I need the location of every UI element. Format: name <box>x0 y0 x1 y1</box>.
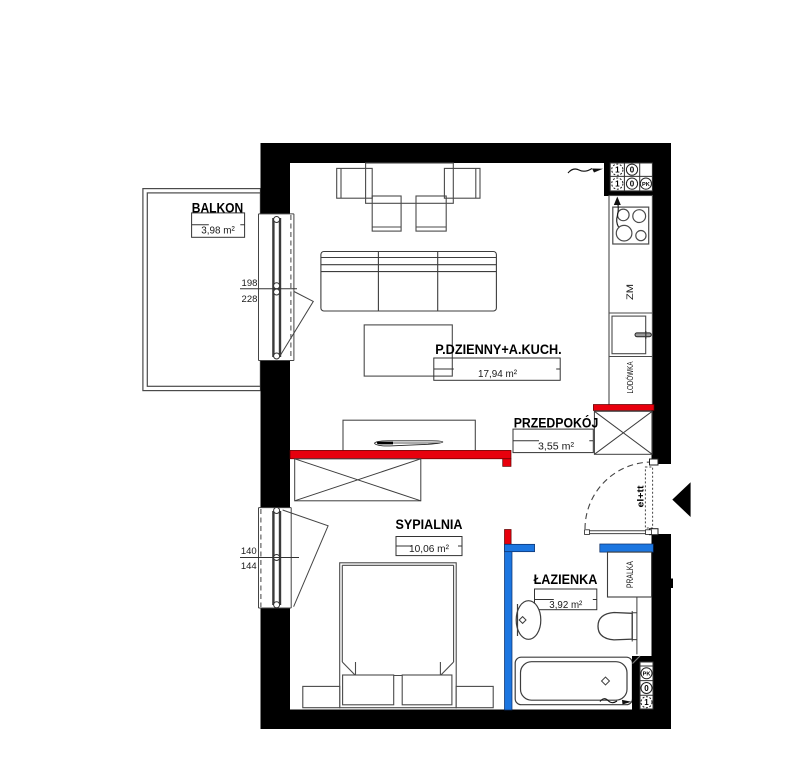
svg-text:228: 228 <box>242 294 258 305</box>
svg-text:ZM: ZM <box>625 284 636 300</box>
svg-text:198: 198 <box>242 278 258 289</box>
svg-text:1: 1 <box>615 180 620 189</box>
svg-text:17,94 m²: 17,94 m² <box>478 369 518 380</box>
svg-text:0: 0 <box>630 166 635 175</box>
svg-text:144: 144 <box>241 561 257 572</box>
svg-text:140: 140 <box>241 546 257 557</box>
svg-text:1: 1 <box>615 166 620 175</box>
svg-text:ŁAZIENKA: ŁAZIENKA <box>534 572 598 587</box>
svg-text:el+tt: el+tt <box>635 486 645 508</box>
svg-text:3,92 m²: 3,92 m² <box>549 600 583 611</box>
svg-text:SYPIALNIA: SYPIALNIA <box>396 517 463 532</box>
svg-text:PRALKA: PRALKA <box>625 561 635 588</box>
svg-text:10,06 m²: 10,06 m² <box>409 544 450 555</box>
svg-text:PK: PK <box>642 182 650 188</box>
svg-text:0: 0 <box>644 684 649 693</box>
svg-text:1: 1 <box>644 698 649 707</box>
svg-text:0: 0 <box>630 180 635 189</box>
svg-text:PK: PK <box>643 672 651 678</box>
svg-text:P.DZIENNY+A.KUCH.: P.DZIENNY+A.KUCH. <box>435 342 561 357</box>
svg-text:PRZEDPOKÓJ: PRZEDPOKÓJ <box>514 416 599 431</box>
svg-text:LODÓWKA: LODÓWKA <box>625 361 635 393</box>
svg-text:3,98 m²: 3,98 m² <box>201 226 235 237</box>
svg-text:3,55 m²: 3,55 m² <box>538 441 575 452</box>
